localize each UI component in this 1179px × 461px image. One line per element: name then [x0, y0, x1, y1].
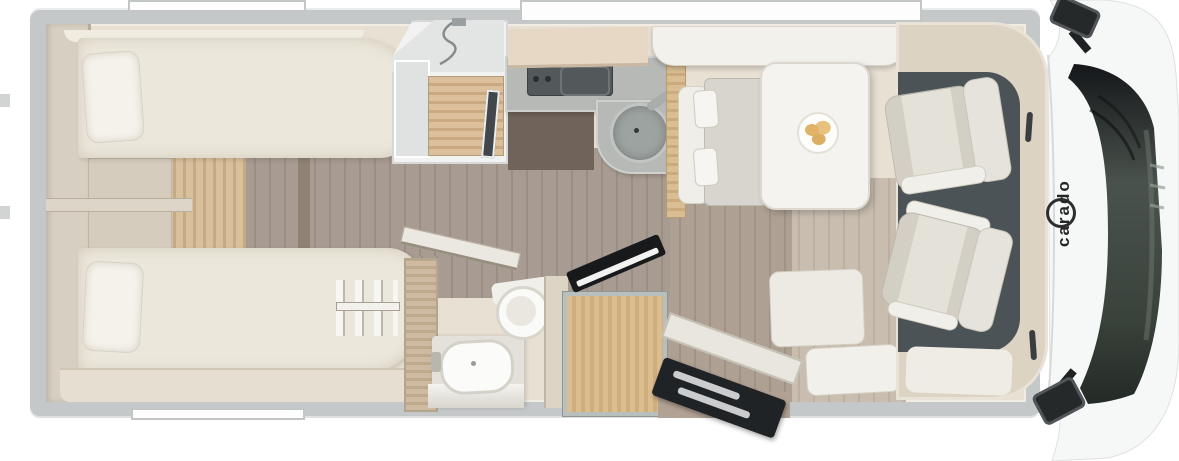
brand-logo-text: carado — [1054, 154, 1080, 272]
cab-body — [0, 0, 1179, 461]
motorhome-floorplan: carado — [0, 0, 1179, 461]
brand-logo: carado — [1044, 154, 1084, 272]
